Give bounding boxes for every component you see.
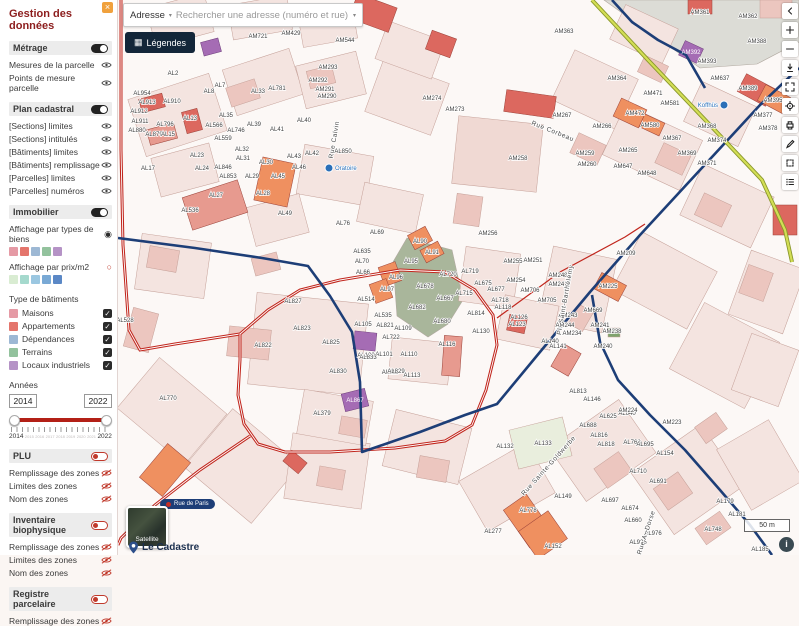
layers-icon [785, 177, 795, 187]
parcel-label: AM389 [738, 86, 758, 92]
section-header-metrage: Métrage [9, 41, 112, 55]
eye-off-icon[interactable] [101, 556, 112, 564]
type-checkbox[interactable]: ✓ [103, 322, 112, 331]
layer-label: [Sections] limites [9, 121, 73, 131]
layer-label: Nom des zones [9, 494, 68, 504]
zoom-out-button[interactable] [782, 41, 798, 57]
parcel-label: AL718 [491, 298, 509, 304]
parcel-label: AL15 [161, 132, 176, 138]
parcel-label: AM369 [677, 151, 697, 157]
parcel-label: AL45 [271, 174, 286, 180]
parcel-label: AM260 [577, 162, 597, 168]
chevron-down-icon[interactable]: ▾ [353, 12, 356, 19]
parcel-label: AL2 [168, 71, 179, 77]
parcel[interactable] [452, 116, 544, 193]
parcel-label: AL911 [132, 119, 150, 125]
parcel-label: AL954 [133, 91, 151, 97]
layer-row: Nom des zones [9, 494, 112, 504]
parcel-label: AL30 [259, 160, 274, 166]
layer-label: Nom des zones [9, 568, 68, 578]
swatch [9, 275, 18, 284]
parcel-label: AL625 [599, 414, 617, 420]
map-pin-icon [128, 541, 139, 554]
draw-icon [785, 139, 795, 149]
extent-icon [785, 63, 795, 73]
parcel-label: AM388 [747, 39, 767, 45]
parcel-label: AL719 [461, 269, 479, 275]
layer-label: Remplissage des zones [9, 616, 99, 626]
parcel-label: AM544 [335, 38, 355, 44]
layer-row: Limites des zones [9, 481, 112, 491]
parcel-label: AL123 [508, 322, 526, 328]
parcel-label: AM292 [308, 78, 328, 84]
draw-measure-button[interactable] [782, 136, 798, 152]
parcel-label: AL559 [214, 136, 232, 142]
eye-icon[interactable] [101, 122, 112, 130]
slider-track [11, 418, 110, 422]
zoom-in-button[interactable] [782, 22, 798, 38]
parcel-label: AL846 [214, 165, 232, 171]
section-title: PLU [13, 451, 31, 461]
parcel-label: AM647 [613, 164, 633, 170]
layer-label: Remplissage des zones [9, 542, 99, 552]
parcel-label: AL146 [583, 397, 601, 403]
parcel-label: AM471 [643, 91, 663, 97]
parcel-label: AM581 [660, 101, 680, 107]
section-toggle-inventaire-biophysique[interactable] [91, 521, 108, 530]
parcel-label: AL695 [636, 442, 654, 448]
collapse-panel-button[interactable] [782, 3, 798, 19]
parcel-label: AL118 [495, 305, 513, 311]
poi-marker-icon[interactable] [325, 164, 333, 172]
slider-handle-right[interactable] [101, 415, 112, 426]
parcel-label: AL722 [382, 335, 400, 341]
parcel-label: AL105 [354, 322, 372, 328]
tick-label: 2021 [87, 434, 96, 439]
tick-label: 2017 [46, 434, 55, 439]
color-swatches [9, 275, 112, 284]
parcel-label: AL27 [209, 193, 224, 199]
tick-label: 2016 [35, 434, 44, 439]
layer-row: [Sections] intitulés [9, 134, 112, 144]
parcel-label: AM254 [506, 278, 526, 284]
parcel-label: AL379 [313, 411, 331, 417]
parcel[interactable] [453, 193, 483, 226]
parcel-label: AM240 [593, 344, 613, 350]
section-header-immobilier: Immobilier [9, 205, 112, 219]
type-checkbox[interactable]: ✓ [103, 361, 112, 370]
type-swatch [9, 309, 18, 318]
parcel-label: AL29 [245, 174, 260, 180]
parcel-label: AM393 [697, 59, 717, 65]
parcel-label: AL821 [376, 323, 394, 329]
parcel[interactable] [316, 466, 345, 490]
parcel-label: AM705 [537, 298, 557, 304]
parcel-label: AL132 [496, 444, 514, 450]
slider-ruler [11, 427, 110, 432]
parcel-label: AM293 [318, 65, 338, 71]
parcel-label: AM362 [738, 14, 758, 20]
year-range-slider[interactable] [11, 415, 110, 424]
tick-label: 2015 [25, 434, 34, 439]
parcel-label: AM472 [625, 111, 645, 117]
layers-list-button[interactable] [782, 174, 798, 190]
parcel-label: AL778 [519, 508, 537, 514]
parcel-label: AL23 [190, 153, 205, 159]
parcel-label: AL816 [590, 433, 608, 439]
parcel-label: AM259 [575, 151, 595, 157]
parcel-label: AL185 [751, 547, 769, 553]
eye-icon[interactable] [101, 79, 112, 87]
year-from-input[interactable] [9, 394, 37, 408]
parcel-label: AL141 [549, 344, 567, 350]
parcel-label: AL746 [227, 128, 245, 134]
layer-row: Nom des zones [9, 568, 112, 578]
section-title: Registre parcelaire [13, 589, 91, 609]
layer-label: [Parcelles] limites [9, 173, 75, 183]
parcel-label: AM265 [618, 148, 638, 154]
building-type-row: Terrains ✓ [9, 347, 112, 357]
collapse-icon [785, 6, 795, 16]
eye-icon[interactable] [101, 187, 112, 195]
building-type-row: Maisons ✓ [9, 308, 112, 318]
parcel-label: AL130 [472, 329, 490, 335]
section-header-registre-parcelaire: Registre parcelaire [9, 587, 112, 611]
parcel-label: AL682 [408, 305, 426, 311]
parcel-label: AL827 [284, 299, 302, 305]
type-checkbox[interactable]: ✓ [103, 335, 112, 344]
layer-row: [Sections] limites [9, 121, 112, 131]
parcel-label: AL113 [404, 373, 422, 379]
parcel-label: AM395 [763, 98, 783, 104]
eye-off-icon[interactable] [101, 543, 112, 551]
parcel-label: AL829 [387, 369, 405, 375]
parcel-label: AM234 [562, 331, 582, 337]
parcel-label: AL536 [181, 208, 199, 214]
section-toggle-plan-cadastral[interactable] [91, 105, 108, 114]
parcel-label: AM377 [753, 113, 773, 119]
eye-icon[interactable] [101, 161, 112, 169]
parcel-label: AM290 [317, 94, 337, 100]
attribution-button[interactable]: i [779, 537, 794, 552]
parcel-label: AM225 [598, 284, 618, 290]
parcel-label: AL7 [215, 83, 226, 89]
app-logo-text: Le Cadastre [142, 542, 199, 553]
parcel-label: AL514 [357, 297, 375, 303]
parcel-label: AL697 [601, 498, 619, 504]
parcel-label: AL41 [270, 127, 285, 133]
map-controls [782, 3, 798, 190]
building-type-row: Appartements ✓ [9, 321, 112, 331]
parcel-label: AL110 [401, 352, 419, 358]
parcel-label: AM266 [592, 124, 612, 130]
layer-label: [Bâtiments] limites [9, 147, 78, 157]
type-swatch [9, 322, 18, 331]
parcel-label: AL69 [370, 230, 385, 236]
parcel-label: AM363 [554, 29, 574, 35]
fullscreen-button[interactable] [782, 79, 798, 95]
parcel-label: AL40 [297, 118, 312, 124]
parcel-label: AL715 [455, 291, 473, 297]
parcel-label: AM255 [503, 259, 523, 265]
type-label: Maisons [22, 308, 54, 318]
section-header-plu: PLU [9, 449, 112, 463]
swatch [42, 247, 51, 256]
parcel-label: AL13 [183, 116, 198, 122]
parcel-label: AL677 [487, 287, 505, 293]
parcel-label: AL913 [138, 100, 156, 106]
type-label: Appartements [22, 321, 75, 331]
parcel-label: AL32 [235, 147, 250, 153]
eye-icon[interactable] [101, 61, 112, 69]
parcel-label: AL770 [159, 396, 177, 402]
layer-row: Mesures de la parcelle [9, 60, 112, 70]
parcel-label: AL96 [389, 275, 404, 281]
parcel-label: AL814 [467, 311, 485, 317]
parcel-label: AL35 [219, 113, 234, 119]
radio-off-icon[interactable]: ○ [107, 263, 112, 272]
layer-label: Limites des zones [9, 481, 77, 491]
eye-icon[interactable] [101, 148, 112, 156]
parcel-label: AL152 [544, 544, 562, 550]
parcel-label: AL635 [353, 249, 371, 255]
section-header-plan-cadastral: Plan cadastral [9, 102, 112, 116]
parcel-label: AL17 [141, 166, 156, 172]
parcel-label: AM209 [616, 251, 636, 257]
parcel-label: AL678 [416, 284, 434, 290]
parcel-label: AM364 [607, 76, 627, 82]
parcel-label: AL90 [413, 239, 428, 245]
layer-row: [Bâtiments] remplissage [9, 160, 112, 170]
eye-off-icon[interactable] [101, 617, 112, 625]
data-management-panel: Gestion des données Métrage Mesures de l… [0, 0, 118, 555]
layer-label: [Parcelles] numéros [9, 186, 84, 196]
layer-row: Limites des zones [9, 555, 112, 565]
layer-row: Points de mesure parcelle [9, 73, 112, 93]
sidebar-close-button[interactable]: × [102, 2, 113, 13]
parcel-label: AL109 [394, 326, 412, 332]
swatch [9, 247, 18, 256]
parcel-label: AL535 [374, 313, 392, 319]
layer-label: Points de mesure parcelle [9, 73, 101, 93]
section-toggle-immobilier[interactable] [91, 208, 108, 217]
section-toggle-registre-parcelaire[interactable] [91, 595, 108, 604]
color-swatches [9, 247, 112, 256]
parcel-label: AL850 [334, 149, 352, 155]
section-toggle-plu[interactable] [91, 452, 108, 461]
parcel-label: AL680 [433, 319, 451, 325]
radio-on-icon[interactable]: ◉ [104, 230, 112, 239]
layer-row: [Parcelles] numéros [9, 186, 112, 196]
eye-off-icon[interactable] [101, 495, 112, 503]
legends-button[interactable]: ▦ Légendes [125, 32, 195, 53]
no-entry-icon [166, 502, 171, 507]
type-label: Dépendances [22, 334, 74, 344]
parcel-label: AM706 [520, 288, 540, 294]
parcel-label: AL154 [656, 451, 674, 457]
swatch [31, 247, 40, 256]
parcel-label: AM361 [690, 10, 710, 16]
layer-row: Affichage par prix/m2○ [9, 262, 112, 272]
app-logo: Le Cadastre [128, 541, 199, 554]
parcel-label: AL39 [247, 122, 262, 128]
swatch [20, 247, 29, 256]
parcel-label: AL101 [375, 352, 393, 358]
type-checkbox[interactable]: ✓ [103, 348, 112, 357]
parcel-label: AM267 [552, 113, 572, 119]
parcel-label: AM256 [478, 231, 498, 237]
parcel-label: AL8 [204, 89, 215, 95]
parcel-label: AM224 [618, 408, 638, 414]
measure-icon [785, 158, 795, 168]
eye-off-icon[interactable] [101, 569, 112, 577]
layer-label: Remplissage des zones [9, 468, 99, 478]
parcel-label: AL76 [336, 221, 351, 227]
parcel-label: AL823 [293, 326, 311, 332]
type-label: Terrains [22, 347, 52, 357]
parcel-label: AL880 [128, 128, 146, 134]
parcel-label: AL748 [704, 527, 722, 533]
year-to-input[interactable] [84, 394, 112, 408]
parcel-label: AL33 [251, 89, 266, 95]
layer-row: Affichage par types de biens◉ [9, 224, 112, 244]
eye-off-icon[interactable] [101, 469, 112, 477]
print-button[interactable] [782, 117, 798, 133]
parcel-label: AL42 [305, 151, 320, 157]
parcel-label: AL910 [163, 99, 181, 105]
parcel-label: AL813 [569, 389, 587, 395]
parcel-label: AL667 [436, 296, 454, 302]
swatch [42, 275, 51, 284]
parcel-label: AM392 [681, 50, 701, 56]
parcel-label: AL830 [329, 369, 347, 375]
slider-tick-labels: 201420152016201720182019202020212022 [9, 433, 112, 440]
search-category-dropdown[interactable]: Adresse [130, 10, 165, 21]
geolocate-button[interactable] [782, 98, 798, 114]
eye-off-icon[interactable] [101, 482, 112, 490]
legend-grid-icon: ▦ [134, 37, 143, 48]
parcel-label: AL28 [256, 191, 271, 197]
parcel-label: AL179 [716, 499, 734, 505]
parcel-label: AL49 [278, 211, 293, 217]
tick-label: 2022 [97, 433, 111, 440]
slider-handle-left[interactable] [9, 415, 20, 426]
parcel-label: AM368 [697, 124, 717, 130]
search-input[interactable]: Rechercher une adresse (numéro et rue) [176, 10, 349, 21]
poi-label: Oratoire [335, 166, 357, 172]
parcel-label: AL566 [205, 123, 223, 129]
parcel-label: AL149 [554, 494, 572, 500]
parcel-label: AL674 [621, 506, 639, 512]
parcel-label: AM721 [248, 34, 268, 40]
locate-icon [785, 101, 795, 111]
parcel-label: AL181 [728, 512, 746, 518]
panel-title: Gestion des données [9, 8, 112, 32]
parcel-label: AM251 [523, 258, 543, 264]
chevron-down-icon[interactable]: ▾ [169, 12, 172, 19]
parcel-label: AL70 [355, 259, 370, 265]
layer-label: [Sections] intitulés [9, 134, 78, 144]
poi-marker-icon[interactable] [720, 101, 728, 109]
type-swatch [9, 335, 18, 344]
type-label: Locaux industriels [22, 360, 90, 370]
parcel-label: AM637 [710, 76, 730, 82]
layer-label: Mesures de la parcelle [9, 60, 95, 70]
parcel-label: AL91 [425, 250, 440, 256]
section-title: Plan cadastral [13, 104, 74, 114]
tick-label: 2020 [77, 434, 86, 439]
fullscreen-icon [785, 82, 795, 92]
parcel-label: AM669 [583, 308, 603, 314]
address-search-bar: Adresse ▾ Rechercher une adresse (numéro… [123, 3, 363, 27]
parcel-label: AM273 [445, 107, 465, 113]
parcel-label: AL24 [195, 166, 210, 172]
section-toggle-metrage[interactable] [91, 44, 108, 53]
parcel-label: AL853 [219, 174, 237, 180]
parcel-label: AL818 [597, 442, 615, 448]
swatch [31, 275, 40, 284]
parcel-label: AL691 [649, 479, 667, 485]
parcel-label: AL822 [254, 343, 272, 349]
panel-sections: Métrage Mesures de la parcelle Points de… [9, 41, 112, 626]
building-type-row: Dépendances ✓ [9, 334, 112, 344]
parcel-label: AM580 [640, 123, 660, 129]
swatch [20, 275, 29, 284]
eye-icon[interactable] [101, 174, 112, 182]
parcel-label: AM429 [281, 31, 301, 37]
print-icon [785, 120, 795, 130]
layer-row: Remplissage des zones [9, 468, 112, 478]
street-sign-rue-de-paris: Rue de Paris [160, 499, 215, 509]
parcel-label: AL277 [484, 529, 502, 535]
type-checkbox[interactable]: ✓ [103, 309, 112, 318]
parcel-label: AM371 [697, 161, 717, 167]
eye-icon[interactable] [101, 135, 112, 143]
tick-label: 2018 [56, 434, 65, 439]
layer-label: Affichage par prix/m2 [9, 262, 89, 272]
parcel-label: AL95 [404, 259, 419, 265]
parcel-label: AM238 [602, 329, 622, 335]
parcel-label: AM374 [707, 138, 727, 144]
tick-label: 2014 [9, 433, 23, 440]
poi-label: Koffhüs [698, 103, 718, 109]
type-swatch [9, 348, 18, 357]
parcel-label: AL867 [346, 398, 364, 404]
parcel-label: AM291 [315, 87, 335, 93]
layer-row: Remplissage des zones [9, 616, 112, 626]
measure-area-button[interactable] [782, 155, 798, 171]
parcel-label: AL97 [380, 287, 395, 293]
swatch [53, 247, 62, 256]
parcel-label: AM367 [662, 136, 682, 142]
parcel-label: AL66 [356, 270, 371, 276]
parcel-label: AL720 [439, 272, 457, 278]
parcel-label: AL43 [287, 154, 302, 160]
layer-row: [Parcelles] limites [9, 173, 112, 183]
map-canvas[interactable]: AL2AL7AL954AL913AL910AL912AL911AL880AL87… [118, 0, 799, 555]
zoom-extent-button[interactable] [782, 60, 798, 76]
parcel-label: AL31 [236, 156, 251, 162]
parcel-label: AM274 [422, 96, 442, 102]
tick-label: 2019 [66, 434, 75, 439]
building-type-row: Locaux industriels ✓ [9, 360, 112, 370]
parcel[interactable] [353, 331, 377, 351]
parcel-label: AL126 [510, 315, 528, 321]
year-range-inputs [9, 394, 112, 408]
parcel-label: AM648 [637, 171, 657, 177]
parcel-label: AM223 [662, 420, 682, 426]
parcel-label: AL781 [268, 86, 286, 92]
